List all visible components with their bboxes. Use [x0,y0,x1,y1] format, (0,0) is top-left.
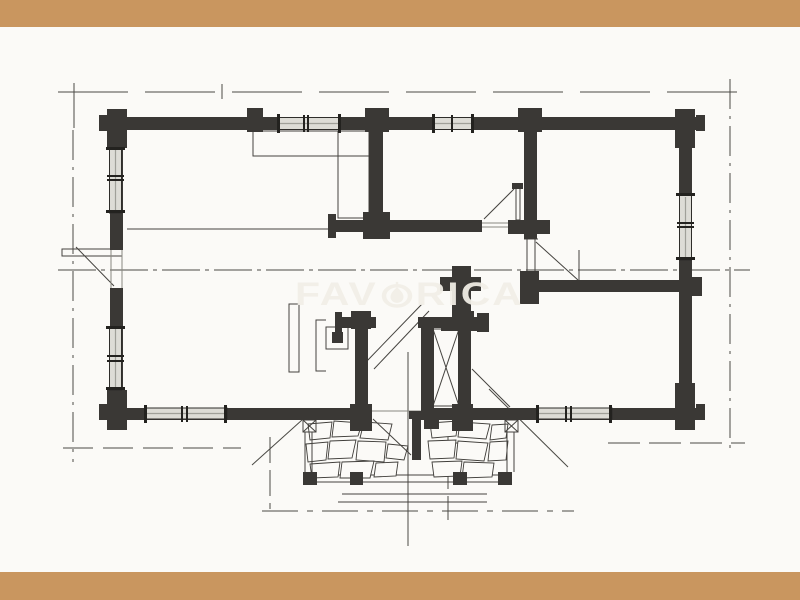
porch-post-3 [453,472,467,485]
vestibule-wall-e [355,327,368,408]
watermark-text-left: FAV [295,278,378,310]
porch-post-1 [303,472,317,485]
entry-counter [289,304,299,372]
porch-post-2 [350,472,363,485]
vestibule-swing [472,369,510,407]
closet-side-wall [338,131,369,218]
corner-post-tl [107,109,127,148]
windows [106,114,695,423]
fireplace-hearth [441,317,479,331]
outer-wall-top [103,117,697,130]
vestibule-wall-f [458,327,471,408]
vestibule-wall-mid [421,327,434,420]
bedroom-door-leaf [516,187,520,220]
outer-wall-bottom-left [103,408,372,420]
scanned-floor-plan-page: FAV RICA [0,0,800,600]
hall-door-swing [536,242,578,280]
closet-top-wall [253,131,370,156]
porch-post-4 [498,472,512,485]
corner-post-br [675,383,695,430]
construction-lines [58,79,753,546]
interior-wall-b [332,220,482,232]
interior-wall-a [369,128,383,225]
watermark-text-right: RICA [416,278,524,310]
corner-post-tr [675,109,695,148]
outer-wall-right [679,117,692,413]
main-door-leaf [412,413,421,460]
exterior-bench [62,249,122,256]
left-door-swing [76,247,114,286]
interior-wall-d [524,280,692,292]
watermark: FAV RICA [295,280,524,310]
entry-swing-1 [366,304,422,362]
watermark-leaf-o-icon [380,280,414,308]
stove-core [332,332,343,343]
corner-post-bl [107,390,127,430]
interior-wall-c [524,128,537,220]
bedroom-door-swing [484,189,514,219]
